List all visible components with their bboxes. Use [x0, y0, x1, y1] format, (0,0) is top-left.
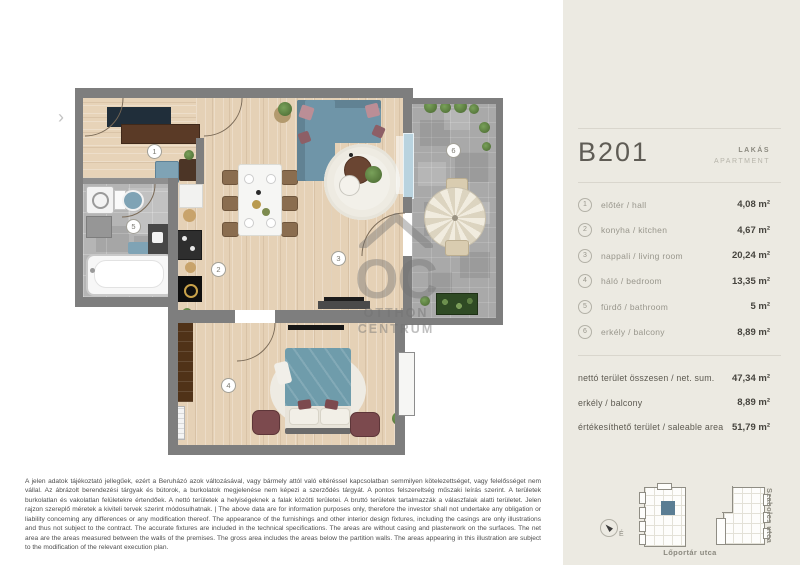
stove-burner — [190, 246, 195, 251]
unit-id: B201 — [578, 137, 649, 168]
wall-segment — [75, 88, 83, 307]
dining-chair — [222, 196, 239, 211]
room-area: 8,89 m² — [737, 327, 770, 338]
plate — [244, 218, 254, 228]
plate — [244, 174, 254, 184]
room-badge-kitchen: 2 — [211, 262, 226, 277]
dining-chair — [281, 222, 298, 237]
total-label: nettó terület összesen / net. sum. — [578, 373, 714, 383]
room-label: nappali / living room — [601, 251, 683, 261]
info-sidebar: B201 LAKÁS APARTMENT 1 előtér / hall 4,0… — [563, 0, 800, 565]
toilet — [122, 190, 144, 211]
otthon-centrum-watermark: OC OTTHON CENTRUM — [338, 212, 454, 337]
room-area: 4,08 m² — [737, 199, 770, 210]
hall-plant — [184, 150, 194, 160]
building-bump — [639, 534, 646, 545]
accent-pillow — [297, 399, 311, 410]
total-value: 47,34 m² — [732, 373, 770, 384]
washing-machine-door — [92, 192, 109, 209]
building-bump — [639, 507, 646, 519]
bathtub-faucet — [90, 268, 95, 273]
stone-patch — [444, 110, 470, 130]
wall-segment — [168, 178, 178, 323]
wall-niche — [398, 352, 415, 416]
room-number: 6 — [578, 325, 592, 339]
street-label-bottom: Lőportár utca — [630, 548, 750, 557]
candle — [349, 153, 353, 157]
room-area: 4,67 m² — [737, 225, 770, 236]
balcony-glass-door — [403, 133, 414, 199]
room-label: konyha / kitchen — [601, 225, 667, 235]
hall-sideboard — [121, 124, 200, 144]
totals-list: nettó terület összesen / net. sum. 47,34… — [578, 366, 770, 440]
room-number: 2 — [578, 223, 592, 237]
kitchen-basket — [183, 209, 196, 222]
stove-burner — [182, 236, 187, 241]
total-row-saleable: értékesíthető terület / saleable area 51… — [578, 415, 770, 440]
room-label: fürdő / bathroom — [601, 302, 668, 312]
room-badge-bath: 5 — [126, 219, 141, 234]
wall-segment — [196, 138, 204, 184]
wall-segment — [75, 88, 413, 98]
unit-type: LAKÁS APARTMENT — [714, 147, 770, 165]
sink — [152, 232, 163, 243]
dining-chair — [281, 170, 298, 185]
bath-cabinet — [86, 216, 112, 238]
divider — [578, 182, 781, 183]
room-row-living: 3 nappali / living room 20,24 m² — [578, 243, 770, 269]
room-number: 1 — [578, 198, 592, 212]
bathtub-basin — [94, 260, 164, 288]
room-number: 5 — [578, 300, 592, 314]
unit-type-hu: LAKÁS — [714, 147, 770, 154]
balcony-plant — [469, 104, 479, 114]
room-row-kitchen: 2 konyha / kitchen 4,67 m² — [578, 218, 770, 244]
total-value: 51,79 m² — [732, 422, 770, 433]
wall-segment — [83, 178, 170, 184]
stove — [177, 230, 202, 260]
room-badge-bedroom: 4 — [221, 378, 236, 393]
watermark-line2: CENTRUM — [338, 321, 454, 337]
room-badge-hall: 1 — [147, 144, 162, 159]
room-number: 3 — [578, 249, 592, 263]
total-row-net: nettó terület összesen / net. sum. 47,34… — [578, 366, 770, 391]
pendant-lamp — [184, 284, 198, 298]
brochure-page: › 1 2 3 4 5 6 OC OTTHON CENTRUM A jelen … — [0, 0, 800, 565]
dining-chair — [222, 222, 239, 237]
room-area: 13,35 m² — [732, 276, 770, 287]
watermark-logo: OC — [338, 253, 454, 305]
room-number: 4 — [578, 274, 592, 288]
bedroom-pouf — [252, 410, 280, 435]
room-label: háló / bedroom — [601, 276, 662, 286]
wall-segment — [168, 318, 178, 455]
total-value: 8,89 m² — [737, 397, 770, 408]
bowl — [252, 200, 261, 209]
total-label: erkély / balcony — [578, 398, 642, 408]
total-label: értékesíthető terület / saleable area — [578, 422, 723, 432]
kitchen-counter — [179, 184, 203, 208]
living-plant — [278, 102, 292, 116]
room-row-bath: 5 fürdő / bathroom 5 m² — [578, 294, 770, 320]
dining-chair — [281, 196, 298, 211]
compass-needle-icon — [601, 520, 617, 536]
building-bump — [639, 521, 646, 532]
curtain — [396, 136, 403, 194]
total-row-balcony: erkély / balcony 8,89 m² — [578, 391, 770, 416]
bedroom-tv — [288, 325, 344, 330]
balcony-plant — [482, 142, 491, 151]
wall-segment — [403, 197, 412, 213]
room-area: 5 m² — [750, 301, 770, 312]
room-row-hall: 1 előtér / hall 4,08 m² — [578, 192, 770, 218]
divider — [578, 355, 781, 356]
bed-headboard — [285, 428, 351, 434]
plate — [266, 218, 276, 228]
building-bump — [639, 492, 646, 504]
side-table — [339, 175, 360, 196]
wall-segment — [178, 310, 235, 323]
highlighted-unit — [661, 501, 675, 515]
dining-chair — [222, 170, 239, 185]
room-badge-balcony: 6 — [446, 143, 461, 158]
bed-pillow — [320, 408, 350, 425]
wall-segment — [403, 98, 412, 133]
unit-type-en: APARTMENT — [714, 158, 770, 165]
bedroom-wardrobe — [178, 318, 193, 402]
plate — [266, 174, 276, 184]
room-label: erkély / balcony — [601, 327, 665, 337]
building-notch — [722, 486, 733, 513]
rug-plant — [365, 166, 382, 183]
kitchen-basket — [185, 262, 196, 273]
bowl — [262, 208, 270, 216]
room-row-bedroom: 4 háló / bedroom 13,35 m² — [578, 269, 770, 295]
room-label: előtér / hall — [601, 200, 646, 210]
balcony-wall — [412, 98, 502, 104]
balcony-plant — [479, 122, 490, 133]
street-label-right: Szabolcs utca — [765, 488, 774, 546]
divider — [578, 128, 781, 129]
room-area: 20,24 m² — [732, 250, 770, 261]
candle — [256, 190, 261, 195]
north-label: É — [619, 531, 624, 538]
site-building-left — [644, 487, 686, 547]
room-row-balcony: 6 erkély / balcony 8,89 m² — [578, 320, 770, 346]
compass-icon — [600, 519, 618, 537]
wall-segment — [168, 445, 405, 455]
bed-duvet — [285, 348, 351, 406]
room-list: 1 előtér / hall 4,08 m² 2 konyha / kitch… — [578, 192, 770, 345]
balcony-wall — [496, 98, 503, 325]
bedroom-pouf — [350, 412, 380, 437]
building-bump — [716, 518, 726, 545]
wall-segment — [75, 297, 178, 307]
entrance-direction-icon: › — [58, 108, 64, 126]
building-bump — [657, 483, 672, 490]
disclaimer-text: A jelen adatok tájékoztató jellegűek, ez… — [25, 477, 541, 553]
bed-pillow — [289, 408, 319, 425]
stone-patch — [418, 162, 446, 186]
house-roof-icon — [357, 212, 435, 248]
